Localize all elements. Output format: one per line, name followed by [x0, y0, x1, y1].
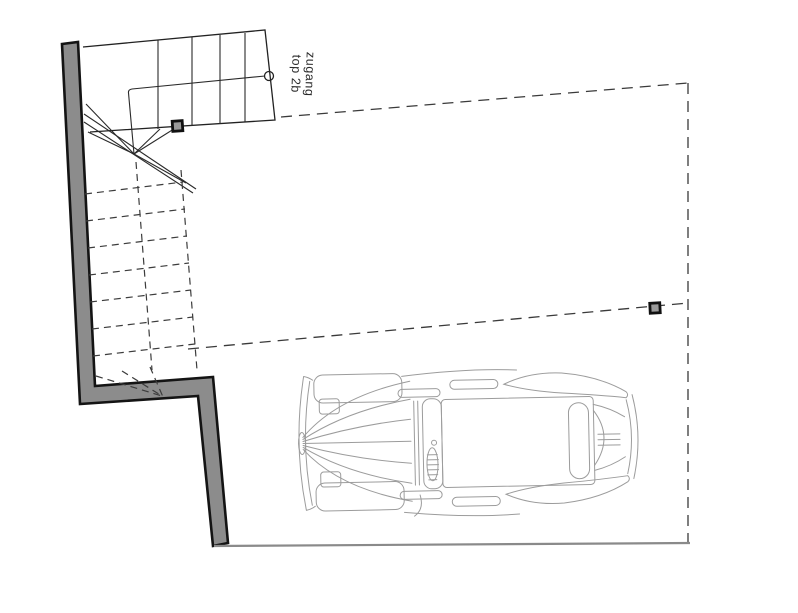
car-side-molding-left: [398, 389, 440, 398]
car-rear-fender-right: [506, 476, 630, 505]
car-top-view: [297, 367, 639, 520]
stair-tread-dashed: [86, 209, 185, 221]
stair-shaft-edge-dashed: [181, 170, 197, 370]
car-rear-fender-left: [504, 371, 628, 400]
stair-tread-dashed: [90, 290, 191, 302]
break-line-lower: [84, 122, 193, 193]
car-door-right: [452, 496, 500, 506]
car-front-fender-right: [316, 481, 405, 511]
stair-tread-dashed: [93, 344, 195, 356]
car-door-left: [450, 379, 498, 389]
car-hood-lines: [302, 381, 412, 503]
walking-line-dashed: [136, 162, 152, 370]
boundary-solid-bottom: [214, 543, 690, 546]
boundary-dashed-top: [281, 83, 688, 117]
stair-tread-dashed: [89, 263, 189, 275]
staircase: [83, 30, 275, 397]
parking-boundary: [188, 83, 690, 546]
car-body-side-right: [405, 510, 520, 517]
walking-line-start-circle: [265, 72, 274, 81]
stair-treads-upper: [158, 33, 245, 129]
car-cowl-panel: [422, 399, 443, 489]
winder-tread: [134, 154, 186, 183]
stair-outline: [83, 30, 275, 132]
stair-tread-dashed: [85, 182, 183, 194]
car-windshield: [414, 401, 420, 485]
stair-tread-dashed: [88, 236, 187, 248]
entrance-label-line2: top 2b: [288, 54, 303, 93]
car-body-side-left: [402, 369, 517, 376]
stair-dashed-flight: [85, 162, 197, 397]
newel-post: [172, 121, 183, 132]
car-rear-window: [568, 402, 590, 478]
floor-plan-svg: zugang top 2b: [0, 0, 798, 613]
entrance-label: zugang top 2b: [288, 51, 318, 97]
boundary-dashed-middle: [188, 303, 688, 349]
car-headlight-left: [319, 399, 339, 414]
car-headlight-right: [321, 472, 341, 487]
car-fuel-cap: [431, 440, 436, 445]
column-post: [650, 303, 661, 314]
exterior-wall: [62, 42, 228, 546]
car-rear-bumper: [626, 394, 639, 478]
car-engine-vents: [598, 434, 620, 445]
car-roof: [441, 396, 595, 487]
car-engine-lid: [593, 410, 604, 465]
winder-tread: [134, 127, 177, 154]
wall-polygon: [62, 42, 228, 546]
floor-plan-canvas: zugang top 2b: [0, 0, 798, 613]
stair-tread-dashed: [92, 317, 193, 329]
winder-treads: [86, 104, 186, 183]
entrance-label-line1: zugang: [302, 52, 318, 97]
